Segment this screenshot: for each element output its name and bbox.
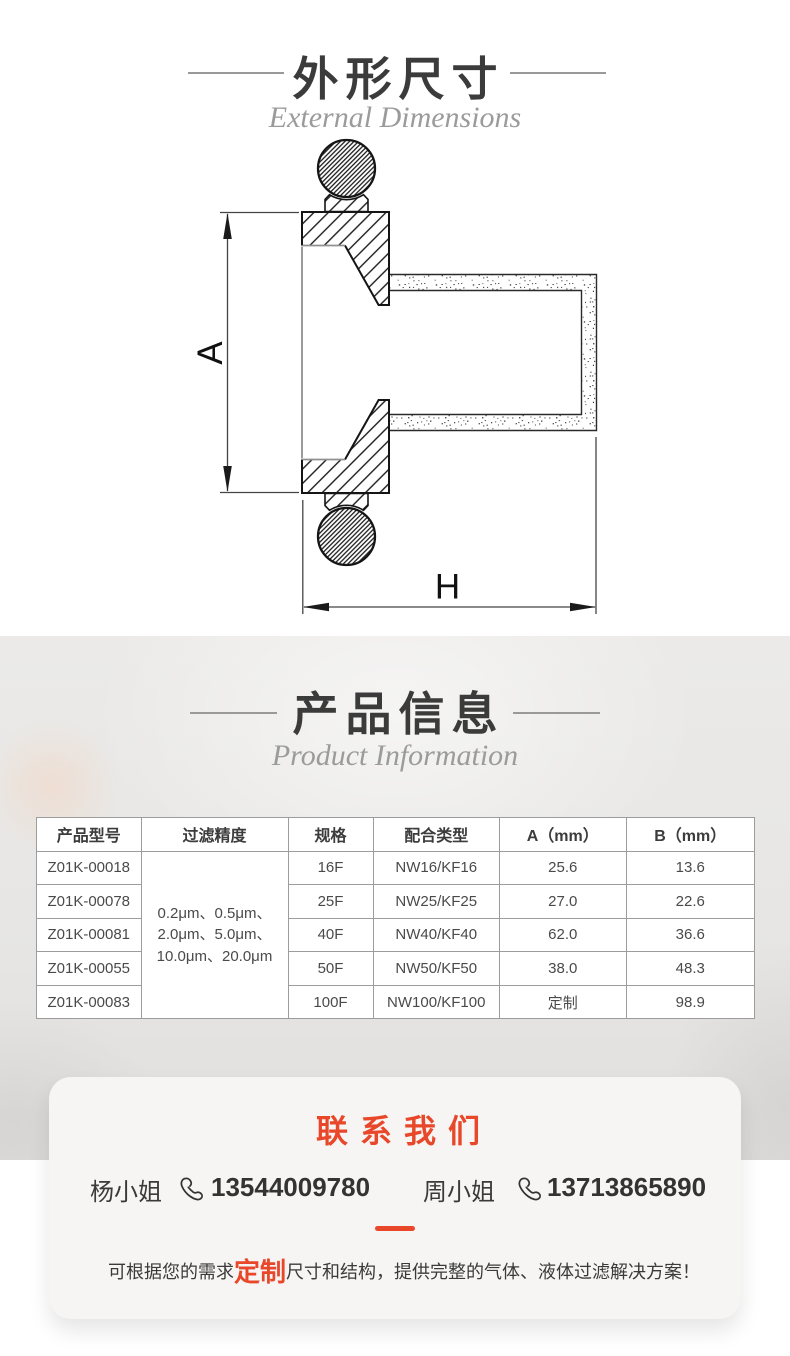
svg-text:A: A	[191, 341, 230, 365]
svg-text:H: H	[435, 568, 460, 607]
